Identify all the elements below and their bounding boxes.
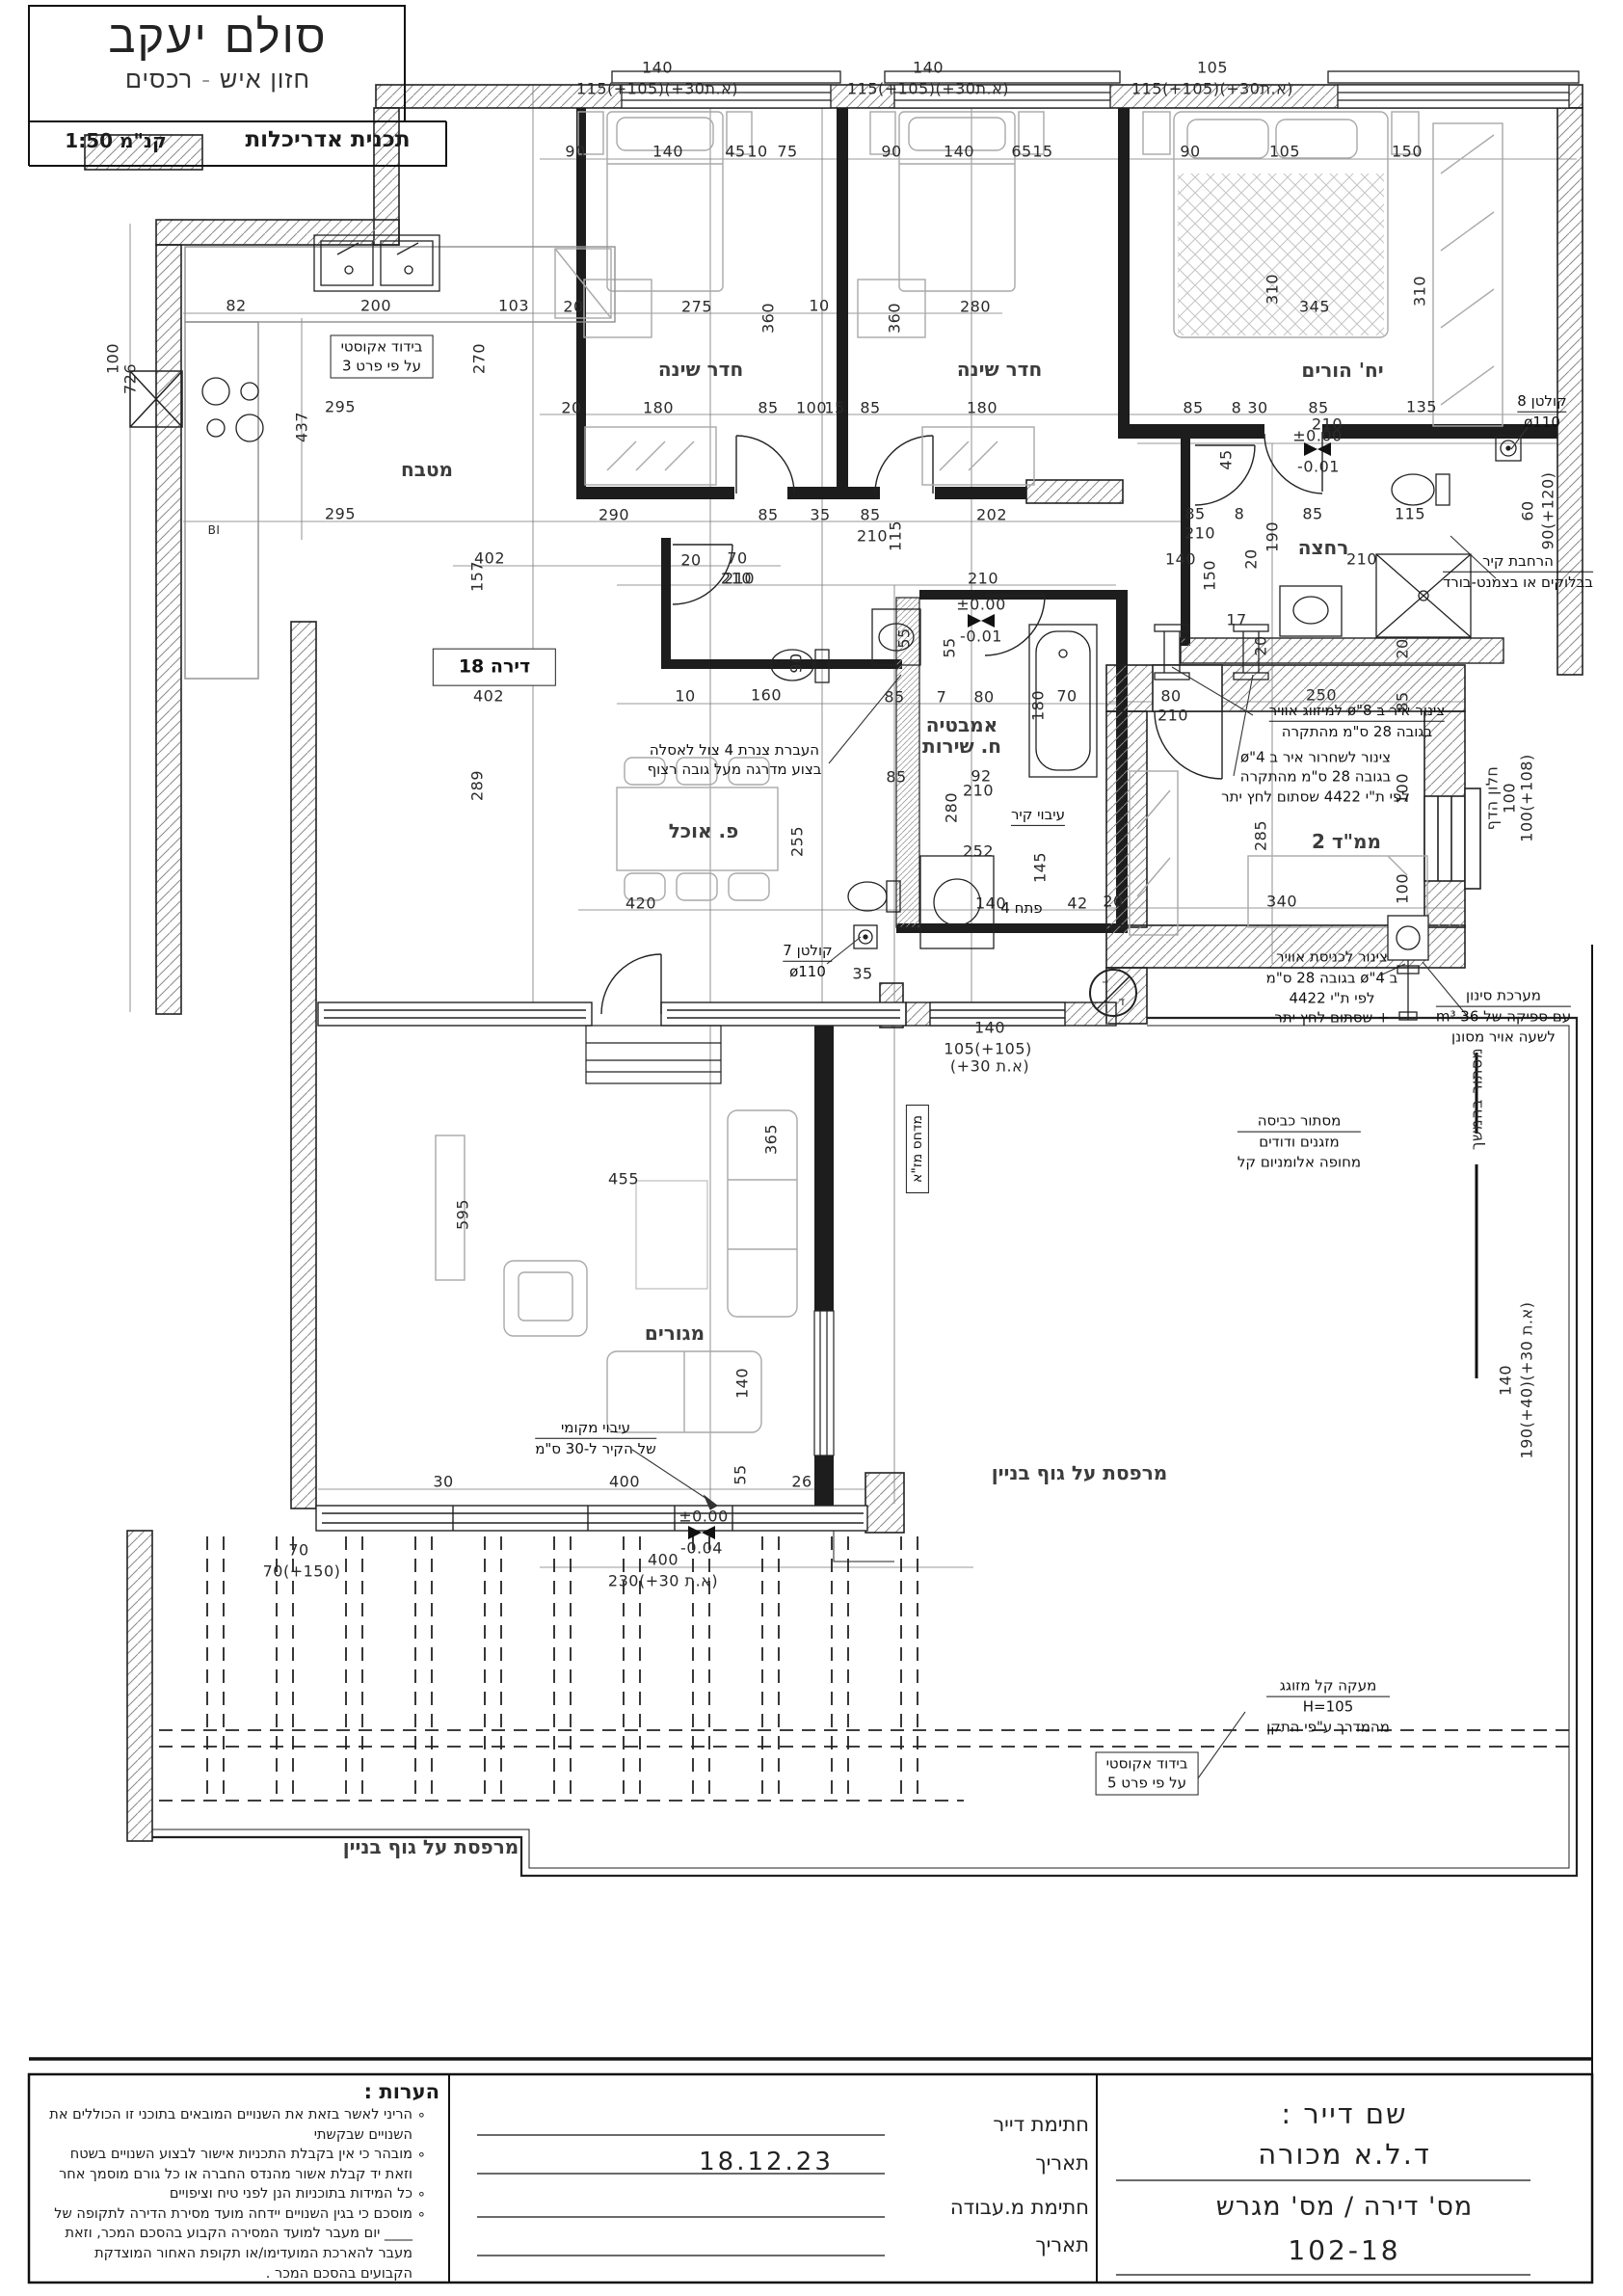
- dimension-label: 345: [1299, 298, 1330, 316]
- dimension-label: 115(+105)(+30א.ת): [1131, 80, 1293, 98]
- dimension-label: 105: [1197, 59, 1228, 77]
- dimension-label: 210: [1184, 524, 1215, 543]
- dimension-label: -0.01: [960, 627, 1002, 646]
- dimension-label: 42: [1067, 894, 1087, 913]
- dimension-label: 140: [974, 1019, 1005, 1037]
- dimension-label: 70: [1056, 687, 1077, 706]
- dimension-label: 295: [325, 505, 356, 523]
- dimension-label: 20: [1103, 893, 1123, 911]
- dimension-label: 140: [652, 143, 683, 161]
- dimension-label: 289: [468, 770, 487, 801]
- drawing-type: תכנית אדריכלות: [217, 127, 439, 152]
- dimension-label: 210: [857, 527, 888, 546]
- dimension-label: 85: [860, 506, 880, 524]
- dimension-label: 70: [288, 1541, 308, 1560]
- dimension-label: 365: [762, 1124, 781, 1155]
- dimension-label: 210: [1346, 550, 1377, 569]
- dimension-label: 210: [1157, 707, 1188, 725]
- dimension-label: 400: [648, 1551, 678, 1569]
- room-label: ח. שירות: [922, 734, 1001, 758]
- dimension-label: 210: [724, 570, 755, 588]
- annotation: עיבוי קיר: [1011, 805, 1065, 826]
- dimension-label: 75: [777, 143, 797, 161]
- dimension-label: 202: [976, 506, 1007, 524]
- signature-label: תאריך: [887, 2233, 1089, 2256]
- dimension-label: 115: [887, 521, 905, 551]
- lot-value: 102-18: [1097, 2234, 1592, 2266]
- dimension-label: 85: [1184, 505, 1205, 523]
- dimension-label: ±0.00: [956, 596, 1006, 614]
- dimension-label: 140: [913, 59, 944, 77]
- room-label: מרפסת על גוף בניין: [343, 1835, 519, 1858]
- dimension-label: 285: [1252, 820, 1270, 851]
- dimension-label: 135: [1406, 398, 1437, 416]
- dimension-label: 150: [1392, 143, 1423, 161]
- dimension-label: 20: [563, 298, 583, 316]
- dimension-label: 10: [675, 687, 695, 706]
- dimension-label: 90: [565, 143, 585, 161]
- dimension-label: 360: [886, 303, 904, 334]
- dimension-label: 105(+105): [944, 1040, 1031, 1058]
- boxed-label: בידוד אקוסטיעל פי פרט 3: [331, 335, 434, 379]
- dimension-label: 420: [625, 894, 656, 913]
- dimension-label: 402: [473, 687, 504, 706]
- dimension-label: 200: [360, 297, 391, 315]
- annotation: קולטן 8ø110: [1517, 391, 1566, 433]
- dimension-label: 180: [643, 399, 674, 417]
- dimension-label: 85: [1302, 505, 1322, 523]
- dimension-label: 20: [1252, 635, 1270, 655]
- lot-label: מס' דירה / מס' מגרש: [1097, 2192, 1592, 2222]
- dimension-label: 270: [470, 343, 489, 374]
- dimension-label: 290: [599, 506, 629, 524]
- dimension-label: 230(+30 א.ת): [608, 1572, 718, 1590]
- dimension-label: 55: [941, 637, 959, 657]
- dimension-label: 180: [1029, 690, 1048, 721]
- dimension-label: (+30 א.ת): [950, 1057, 1029, 1076]
- tenant-name-label: שם דייר :: [1097, 2097, 1592, 2130]
- dimension-label: 65: [1011, 143, 1031, 161]
- dimension-label: 115: [1395, 505, 1425, 523]
- dimension-label: מסתור בהמשך: [1468, 1048, 1486, 1150]
- dimension-label: 252: [963, 842, 994, 861]
- room-label: ממ"ד 2: [1312, 830, 1381, 853]
- dimension-label: 45: [1217, 449, 1236, 469]
- dimension-label: 30: [433, 1473, 453, 1491]
- tenant-name: ד.ל.א מכורה: [1097, 2138, 1592, 2171]
- dimension-label: 7: [937, 688, 947, 707]
- room-label: מגורים: [645, 1322, 705, 1345]
- dimension-label: 55: [895, 627, 914, 648]
- boxed-label: דירה 18: [433, 649, 556, 686]
- dimension-label: -0.01: [1297, 458, 1340, 476]
- annotation: צינור לשחרור איר ב ø"4בגובה 28 ס"מ מהתקר…: [1221, 748, 1410, 807]
- dimension-label: 140: [642, 59, 673, 77]
- dimension-label: 90(+120): [1539, 472, 1557, 550]
- dimension-label: 275: [681, 298, 712, 316]
- dimension-label: 15: [1032, 143, 1052, 161]
- dimension-label: 140: [733, 1368, 752, 1399]
- dimension-label: 80: [973, 688, 994, 707]
- dimension-label: 35: [852, 965, 872, 983]
- dimension-label: 255: [788, 826, 807, 857]
- dimension-label: 15: [824, 399, 844, 417]
- note-item: כל המידות בתוכניות הנן לפני טיח וציפויים: [39, 2184, 426, 2204]
- room-label: חדר שינה: [658, 358, 743, 381]
- dimension-label: 80: [1160, 687, 1181, 706]
- annotation: קולטן 7ø110: [783, 941, 832, 982]
- signature-date: 18.12.23: [665, 2148, 867, 2176]
- dimension-label: 85: [860, 399, 880, 417]
- dimension-label: 115(+105)(+30א.ת): [576, 80, 738, 98]
- dimension-label: 140: [1165, 550, 1196, 569]
- dimension-label: 82: [226, 297, 246, 315]
- dimension-label: 100(+108): [1518, 754, 1536, 841]
- annotation: מעקה קל מזוגגH=105מהמדרך ע"פי התקן: [1266, 1676, 1390, 1737]
- dimension-label: 26: [791, 1473, 811, 1491]
- annotation: צינור איר ב ø"8 למיזווג אווירבגובה 28 ס"…: [1269, 701, 1445, 742]
- note-item: הריני לאשר בזאת את השנויים המובאים בתוכנ…: [39, 2105, 426, 2145]
- plan-text-layer: סולם יעקב חזון איש - רכסים תכנית אדריכלו…: [0, 0, 1623, 2296]
- drawing-scale: קנ"מ 1:50: [39, 129, 193, 152]
- annotation: העברת צנרת 4 צול לאסלהבצוע מדרגה מעל גוב…: [648, 740, 822, 780]
- room-label: אמבטיה: [926, 713, 998, 736]
- dimension-label: 35: [810, 506, 830, 524]
- dimension-label: 437: [293, 412, 311, 442]
- dimension-label: 210: [963, 782, 994, 800]
- note-item: מובהר כי אין בקבלת התכניות אישור לבצוע ה…: [39, 2145, 426, 2184]
- dimension-label: 20: [561, 399, 581, 417]
- signature-label: חתימת מ.עבודה: [887, 2196, 1089, 2219]
- dimension-label: 340: [1266, 893, 1297, 911]
- dimension-label: 85: [884, 688, 904, 707]
- signature-label: חתימת דייר: [887, 2113, 1089, 2136]
- dimension-label: 180: [967, 399, 998, 417]
- architectural-plan-sheet: סולם יעקב חזון איש - רכסים תכנית אדריכלו…: [0, 0, 1623, 2296]
- room-label: פ. אוכל: [669, 819, 739, 842]
- dimension-label: 295: [325, 398, 356, 416]
- room-label: יח' הורים: [1301, 359, 1383, 382]
- room-label: מטבח: [401, 458, 453, 481]
- dimension-label: 85: [758, 399, 778, 417]
- dimension-label: 45: [725, 143, 745, 161]
- dimension-label: 70: [727, 549, 747, 568]
- dimension-label: 140: [944, 143, 974, 161]
- dimension-label: 85: [758, 506, 778, 524]
- dimension-label: 115(+105)(+30א.ת): [847, 80, 1009, 98]
- dimension-label: 455: [608, 1170, 639, 1188]
- dimension-label: 30: [1247, 399, 1267, 417]
- dimension-label: 145: [1031, 852, 1050, 883]
- dimension-label: 100: [104, 343, 122, 374]
- dimension-label: 10: [747, 143, 767, 161]
- annotation: עיבוי מקומישל הקיר ל-30 ס"מ: [535, 1418, 656, 1459]
- dimension-label: 100: [1394, 873, 1412, 904]
- dimension-label: 400: [609, 1473, 640, 1491]
- dimension-label: BI: [208, 523, 221, 537]
- project-title: סולם יעקב: [29, 10, 407, 64]
- dimension-label: 190(+40)(+30 א.ת): [1518, 1302, 1536, 1459]
- dimension-label: -0.04: [680, 1539, 723, 1558]
- dimension-label: 20: [1394, 638, 1412, 658]
- dimension-label: 160: [751, 686, 782, 705]
- dimension-label: 726: [121, 363, 140, 394]
- dimension-label: 310: [1264, 274, 1282, 305]
- dimension-label: ד: [1118, 995, 1125, 1008]
- project-subtitle: חזון איש - רכסים: [29, 66, 407, 94]
- boxed-label: מדחס מז"א: [906, 1105, 929, 1193]
- boxed-label: בידוד אקוסטיעל פי פרט 5: [1096, 1752, 1199, 1796]
- dimension-label: 360: [759, 303, 778, 334]
- dimension-label: 17: [1226, 611, 1246, 629]
- annotation: פתח 4: [1000, 898, 1042, 918]
- dimension-label: 280: [960, 298, 991, 316]
- dimension-label: 20: [680, 551, 701, 570]
- dimension-label: 10: [809, 297, 829, 315]
- dimension-label: 210: [968, 570, 998, 588]
- dimension-label: 70(+150): [263, 1562, 341, 1581]
- notes-list: הריני לאשר בזאת את השנויים המובאים בתוכנ…: [39, 2105, 439, 2283]
- dimension-label: 8: [1235, 505, 1245, 523]
- dimension-label: 150: [1201, 560, 1219, 591]
- dimension-label: 105: [1269, 143, 1300, 161]
- dimension-label: 100: [796, 399, 827, 417]
- annotation: הרחבת קירבבלוקים או בצמנט-בורד: [1443, 551, 1593, 593]
- dimension-label: 140: [1497, 1365, 1515, 1396]
- room-label: מרפסת על גוף בניין: [992, 1461, 1167, 1484]
- room-label: חדר שינה: [957, 358, 1042, 381]
- dimension-label: חלון הדף: [1483, 766, 1502, 831]
- signature-label: תאריך: [887, 2151, 1089, 2175]
- dimension-label: 595: [454, 1199, 472, 1230]
- dimension-label: 20: [1242, 548, 1261, 569]
- dimension-label: 310: [1411, 276, 1429, 307]
- dimension-label: 100: [1501, 783, 1519, 814]
- dimension-label: 280: [943, 792, 961, 823]
- annotation: מסתור כביסהמזגנים ודודיםמחופה אלומניום ק…: [1237, 1111, 1361, 1172]
- dimension-label: 90: [1180, 143, 1200, 161]
- notes-block: הערות : הריני לאשר בזאת את השנויים המובא…: [39, 2080, 439, 2283]
- dimension-label: 90: [787, 653, 806, 673]
- dimension-label: 190: [1264, 521, 1282, 552]
- dimension-label: 103: [498, 297, 529, 315]
- notes-title: הערות :: [39, 2080, 439, 2103]
- dimension-label: 90: [881, 143, 901, 161]
- dimension-label: 85: [1183, 399, 1203, 417]
- dimension-label: 8: [1232, 399, 1242, 417]
- dimension-label: ±0.00: [678, 1508, 729, 1526]
- dimension-label: ד: [1102, 977, 1108, 991]
- dimension-label: 55: [732, 1464, 750, 1484]
- annotation: צינור לכניסת אווירב ø"4 בגובה 28 ס"מלפי …: [1266, 948, 1398, 1028]
- note-item: מוסכם כי בגין השנויים יידחה מועד מסירת ה…: [39, 2204, 426, 2283]
- dimension-label: 157: [468, 561, 487, 592]
- dimension-label: 85: [886, 768, 906, 787]
- dimension-label: 60: [1519, 500, 1537, 521]
- dimension-label: ±0.00: [1292, 427, 1343, 445]
- room-label: רחצה: [1298, 536, 1349, 559]
- annotation: מערכת סינוןעם ספיקה של 36 m³לשעה אויר מס…: [1436, 986, 1571, 1047]
